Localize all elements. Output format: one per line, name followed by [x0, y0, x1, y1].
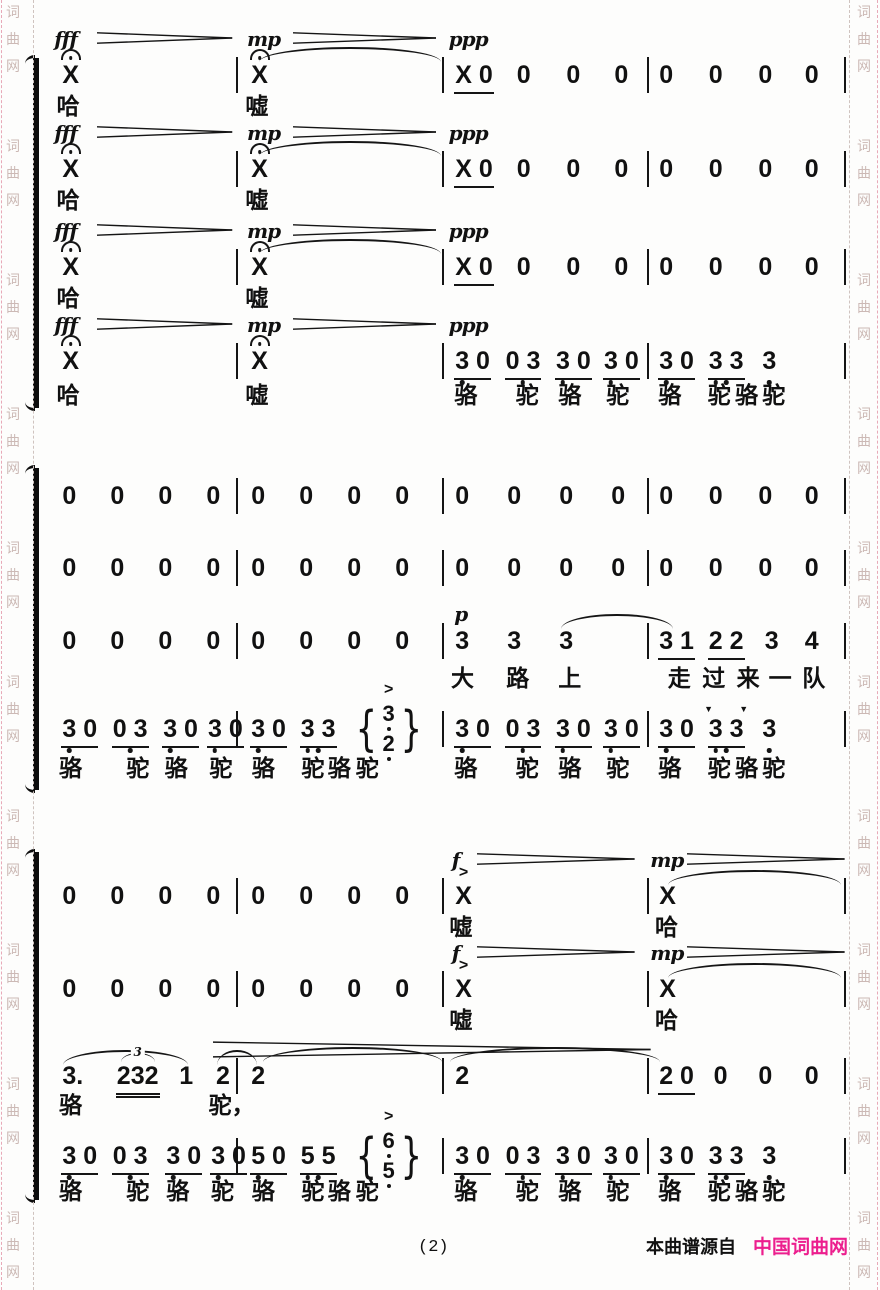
note: 0 — [658, 156, 674, 186]
barline — [844, 1138, 846, 1174]
lyric: 走 — [668, 668, 691, 691]
note: 3 0 — [454, 716, 491, 746]
note: 0 — [250, 555, 266, 585]
edge-line-left — [1, 0, 2, 1290]
chord-brace-left: { — [356, 1132, 377, 1180]
lyric: 骆 — [328, 1181, 351, 1204]
decrescendo-hairpin — [97, 32, 232, 44]
note: 0 — [346, 555, 362, 585]
note: 0 — [250, 976, 266, 1006]
lyric: 哈 — [655, 917, 678, 940]
watermark-right: 网 — [857, 194, 871, 208]
fermata-icon — [61, 143, 81, 154]
lyric: 驼 — [516, 385, 539, 408]
note: 2 — [454, 1063, 470, 1093]
decrescendo-hairpin — [477, 946, 635, 958]
inner-dashed-line-left — [33, 0, 34, 1290]
lyric: 嘘 — [245, 96, 268, 119]
chord-tone: 2 — [383, 733, 395, 755]
barline — [844, 57, 846, 93]
watermark-right: 网 — [857, 328, 871, 342]
lyric: 上 — [558, 668, 581, 691]
note: 0 — [658, 483, 674, 513]
lyric: 骆 — [166, 1181, 189, 1204]
note: 3 — [454, 628, 470, 658]
decrescendo-hairpin — [687, 946, 845, 958]
note: 4 — [804, 628, 820, 658]
note: 0 — [516, 156, 532, 186]
page-number: (2) — [418, 1238, 449, 1258]
note: 3 0 — [165, 1143, 202, 1173]
tie-slur-arc — [259, 239, 441, 254]
decrescendo-hairpin — [97, 126, 232, 138]
lyric: 驼 — [762, 385, 785, 408]
dynamic-fff: fff — [54, 123, 77, 143]
note: 3 0 — [555, 1143, 592, 1173]
barline — [236, 550, 238, 586]
dynamic-mp: mp — [247, 29, 280, 49]
watermark-right: 曲 — [857, 569, 871, 583]
note: 0 — [613, 62, 629, 92]
note: 0 — [804, 555, 820, 585]
barline — [844, 151, 846, 187]
lyric: 骆 — [658, 385, 681, 408]
note: X 0 — [454, 62, 494, 92]
barline — [442, 343, 444, 379]
barline — [647, 971, 649, 1007]
lyric: 嘘 — [245, 288, 268, 311]
watermark-left: 网 — [6, 1132, 20, 1146]
decrescendo-hairpin — [477, 853, 635, 865]
marcato-icon: ▼▼ — [704, 705, 748, 714]
decrescendo-hairpin — [293, 318, 436, 330]
note: 0 — [298, 555, 314, 585]
watermark-right: 曲 — [857, 167, 871, 181]
inner-dashed-line-right — [849, 0, 850, 1290]
barline — [647, 478, 649, 514]
note: 3 0 — [555, 348, 592, 378]
note: X — [250, 62, 269, 92]
note: 0 — [610, 555, 626, 585]
note: 0 — [613, 156, 629, 186]
watermark-right: 词 — [857, 1078, 871, 1092]
note: 0 — [708, 156, 724, 186]
lyric: 嘘 — [449, 917, 472, 940]
note: 0 — [708, 555, 724, 585]
lyric: 骆 — [59, 1095, 82, 1118]
watermark-left: 网 — [6, 1266, 20, 1280]
note: X> — [454, 883, 473, 913]
watermark-right: 网 — [857, 1266, 871, 1280]
watermark-right: 曲 — [857, 301, 871, 315]
note: 3 0 — [603, 716, 640, 746]
note: 0 — [658, 62, 674, 92]
footer-source-text: 本曲谱源自 — [646, 1237, 736, 1259]
note: 0 — [757, 254, 773, 284]
note: 3 — [558, 628, 574, 658]
lyric: 嘘 — [449, 1010, 472, 1033]
note: 0 — [157, 976, 173, 1006]
fermata-icon — [61, 241, 81, 252]
watermark-right: 词 — [857, 542, 871, 556]
chord-tone: 5 — [383, 1160, 395, 1182]
decrescendo-hairpin — [293, 32, 436, 44]
watermark-left: 词 — [6, 6, 20, 20]
note: 2 2 — [708, 628, 745, 658]
watermark-right: 曲 — [857, 1239, 871, 1253]
dynamic-ppp: ppp — [449, 315, 488, 335]
note: 0 — [394, 976, 410, 1006]
note: 2323 — [116, 1063, 160, 1093]
watermark-right: 词 — [857, 408, 871, 422]
note: 0 — [205, 628, 221, 658]
lyric: 骆 — [735, 758, 758, 781]
note: 3 3 — [300, 716, 337, 746]
watermark-left: 网 — [6, 864, 20, 878]
tie-slur-arc — [668, 963, 841, 978]
triplet-3-mark: 3 — [121, 1050, 155, 1061]
barline — [647, 550, 649, 586]
note: 3 0 — [658, 348, 695, 378]
note: 0 — [394, 628, 410, 658]
watermark-left: 网 — [6, 596, 20, 610]
note: 0 3 — [505, 1143, 542, 1173]
barline — [844, 971, 846, 1007]
lyric: 驼 — [356, 1181, 379, 1204]
barline — [442, 1058, 444, 1094]
barline — [236, 151, 238, 187]
note: 0 — [394, 883, 410, 913]
barline — [647, 1138, 649, 1174]
lyric: 驼 — [126, 1181, 149, 1204]
watermark-left: 曲 — [6, 435, 20, 449]
note: 3 3 — [708, 348, 745, 378]
note: 3 0 — [250, 716, 287, 746]
lyric: 骆 — [328, 758, 351, 781]
lyric: 驼 — [708, 385, 731, 408]
lyric: 一 — [769, 668, 792, 691]
note: 0 — [109, 976, 125, 1006]
watermark-right: 网 — [857, 462, 871, 476]
note: 3 — [761, 348, 777, 378]
note: 5 0 — [250, 1143, 287, 1173]
watermark-right: 曲 — [857, 971, 871, 985]
note: 0 — [109, 883, 125, 913]
note: 3. — [61, 1063, 84, 1093]
lyric: 驼 — [606, 758, 629, 781]
watermark-right: 曲 — [857, 703, 871, 717]
chord-note: {32}> — [351, 700, 426, 758]
note: 0 — [804, 1063, 820, 1093]
lyric: 骆 — [252, 758, 275, 781]
watermark-left: 词 — [6, 274, 20, 288]
watermark-left: 网 — [6, 462, 20, 476]
note: 0 — [346, 483, 362, 513]
watermark-left: 词 — [6, 676, 20, 690]
barline — [236, 971, 238, 1007]
note: 1 — [178, 1063, 194, 1093]
fermata-icon — [61, 335, 81, 346]
note: 0 — [346, 883, 362, 913]
note: 0 — [157, 555, 173, 585]
watermark-left: 网 — [6, 328, 20, 342]
accent-icon: > — [459, 865, 468, 881]
barline — [647, 249, 649, 285]
note: 0 — [205, 555, 221, 585]
note: 0 — [516, 62, 532, 92]
chord-tone: 3 — [383, 703, 395, 725]
dynamic-mp: mp — [247, 315, 280, 335]
lyric: 驼 — [516, 1181, 539, 1204]
score-canvas: fffmppppXXX 00000000哈嘘fffmppppXXX 000000… — [47, 0, 847, 1290]
lyric: 骆 — [454, 758, 477, 781]
watermark-right: 网 — [857, 596, 871, 610]
note: 3 0 — [454, 348, 491, 378]
barline — [844, 478, 846, 514]
note: 3 0 — [61, 1143, 98, 1173]
watermark-right: 网 — [857, 730, 871, 744]
lyric: 驼 — [708, 1181, 731, 1204]
note: X> — [454, 976, 473, 1006]
accent-icon: > — [384, 682, 393, 698]
note: 0 — [61, 883, 77, 913]
watermark-right: 词 — [857, 274, 871, 288]
note: 0 3 — [505, 716, 542, 746]
note: 0 — [565, 156, 581, 186]
note: 0 — [804, 156, 820, 186]
note: 0 — [250, 628, 266, 658]
watermark-left: 词 — [6, 944, 20, 958]
dynamic-ppp: ppp — [449, 221, 488, 241]
tie-slur-arc — [259, 47, 441, 62]
note: 0 — [713, 1063, 729, 1093]
note: X — [658, 883, 677, 913]
lyric: 哈 — [655, 1010, 678, 1033]
note: 0 — [558, 483, 574, 513]
score-page: { "footer": { "page_number": "(2)", "sou… — [0, 0, 880, 1290]
note: 0 — [205, 976, 221, 1006]
dynamic-mp: mp — [650, 943, 683, 963]
lyric: 过 — [702, 668, 725, 691]
watermark-left: 曲 — [6, 837, 20, 851]
note: 0 — [757, 62, 773, 92]
note: 2 — [250, 1063, 266, 1093]
note: 0 — [804, 483, 820, 513]
chord-tone: 6 — [383, 1130, 395, 1152]
lyric: 驼 — [606, 385, 629, 408]
note: 3 0 — [658, 1143, 695, 1173]
watermark-right: 词 — [857, 6, 871, 20]
note: 0 — [61, 555, 77, 585]
watermark-left: 网 — [6, 730, 20, 744]
lyric: 驼 — [301, 1181, 324, 1204]
note: 0 — [109, 555, 125, 585]
barline — [236, 878, 238, 914]
note: 0 — [516, 254, 532, 284]
tie-slur-arc — [561, 614, 672, 629]
barline — [647, 1058, 649, 1094]
lyric: 骆 — [454, 1181, 477, 1204]
note: 3 0 — [207, 716, 244, 746]
barline — [236, 57, 238, 93]
lyric: 驼 — [708, 758, 731, 781]
note: 3 0 — [603, 348, 640, 378]
watermark-left: 网 — [6, 998, 20, 1012]
lyric: 嘘 — [245, 385, 268, 408]
note: 0 — [613, 254, 629, 284]
note: 2 0 — [658, 1063, 695, 1093]
note: 0 — [346, 976, 362, 1006]
watermark-right: 网 — [857, 60, 871, 74]
note: 0 3 — [112, 1143, 149, 1173]
watermark-left: 曲 — [6, 971, 20, 985]
lyric: 骆 — [735, 385, 758, 408]
note: 0 — [708, 62, 724, 92]
note: 3 — [761, 716, 777, 746]
barline — [442, 151, 444, 187]
lyric: 队 — [802, 668, 825, 691]
note: 3 0 — [603, 1143, 640, 1173]
note: X — [250, 348, 269, 378]
lyric: 驼 — [301, 758, 324, 781]
note: 0 — [205, 883, 221, 913]
note: 0 — [610, 483, 626, 513]
note: X — [250, 254, 269, 284]
watermark-right: 网 — [857, 998, 871, 1012]
note: 3 0 — [210, 1143, 247, 1173]
watermark-right: 网 — [857, 1132, 871, 1146]
tie-slur-arc — [668, 870, 841, 885]
barline — [647, 151, 649, 187]
accent-icon: > — [459, 958, 468, 974]
barline — [844, 343, 846, 379]
watermark-left: 曲 — [6, 301, 20, 315]
chord-note: {65}> — [351, 1127, 426, 1185]
note: 0 — [157, 883, 173, 913]
lyric: 骆 — [454, 385, 477, 408]
watermark-right: 词 — [857, 676, 871, 690]
barline — [442, 249, 444, 285]
lyric: 驼， — [209, 1095, 255, 1118]
note: 0 — [506, 483, 522, 513]
dynamic-ppp: ppp — [449, 123, 488, 143]
lyric: 骆 — [658, 758, 681, 781]
note: 0 — [109, 483, 125, 513]
barline — [844, 878, 846, 914]
watermark-right: 词 — [857, 1212, 871, 1226]
note: 3 0 — [162, 716, 199, 746]
note: 0 — [61, 628, 77, 658]
barline — [442, 623, 444, 659]
note: 0 — [804, 62, 820, 92]
watermark-right: 词 — [857, 810, 871, 824]
note: X — [61, 62, 80, 92]
note: 0 — [565, 62, 581, 92]
dynamic-fff: fff — [54, 221, 77, 241]
dynamic-mp: mp — [247, 221, 280, 241]
footer-brand-link[interactable]: 中国词曲网 — [753, 1236, 848, 1259]
watermark-right: 词 — [857, 944, 871, 958]
note: 0 — [658, 254, 674, 284]
watermark-left: 曲 — [6, 1239, 20, 1253]
note: X 0 — [454, 156, 494, 186]
barline — [442, 1138, 444, 1174]
watermark-right: 网 — [857, 864, 871, 878]
note: 0 — [250, 483, 266, 513]
note: 3 0 — [658, 716, 695, 746]
barline — [236, 249, 238, 285]
note: 0 — [757, 483, 773, 513]
note: 0 — [205, 483, 221, 513]
note: 3 0 — [61, 716, 98, 746]
lyric: 骆 — [658, 1181, 681, 1204]
barline — [442, 478, 444, 514]
decrescendo-hairpin — [97, 224, 232, 236]
lyric: 哈 — [57, 96, 80, 119]
note: 0 — [558, 555, 574, 585]
lyric: 驼 — [356, 758, 379, 781]
lyric: 哈 — [57, 288, 80, 311]
barline — [442, 711, 444, 747]
note: 0 — [658, 555, 674, 585]
barline — [844, 711, 846, 747]
watermark-left: 网 — [6, 60, 20, 74]
watermark-left: 词 — [6, 542, 20, 556]
dynamic-fff: fff — [54, 29, 77, 49]
note: 0 — [157, 483, 173, 513]
note: 0 — [157, 628, 173, 658]
watermark-left: 词 — [6, 1212, 20, 1226]
barline — [442, 550, 444, 586]
note: X — [658, 976, 677, 1006]
note: 0 — [394, 483, 410, 513]
fermata-icon — [61, 49, 81, 60]
watermark-right: 词 — [857, 140, 871, 154]
note: 3 — [761, 1143, 777, 1173]
note: 0 — [109, 628, 125, 658]
barline — [442, 878, 444, 914]
watermark-left: 词 — [6, 408, 20, 422]
barline — [647, 878, 649, 914]
lyric: 骆 — [558, 385, 581, 408]
note: 0 — [708, 483, 724, 513]
tie-slur-arc — [259, 141, 441, 156]
watermark-left: 词 — [6, 140, 20, 154]
note: 3 0 — [555, 716, 592, 746]
barline — [844, 1058, 846, 1094]
lyric: 来 — [737, 668, 760, 691]
barline — [236, 343, 238, 379]
lyric: 驼 — [126, 758, 149, 781]
accent-icon: > — [384, 1109, 393, 1125]
chord-brace-left: { — [356, 705, 377, 753]
lyric: 哈 — [57, 385, 80, 408]
watermark-right: 曲 — [857, 1105, 871, 1119]
barline — [647, 57, 649, 93]
note: 0 3 — [505, 348, 542, 378]
lyric: 骆 — [252, 1181, 275, 1204]
note: 0 — [804, 254, 820, 284]
decrescendo-hairpin — [293, 224, 436, 236]
dynamic-p: p — [454, 604, 467, 624]
note: 3 1 — [658, 628, 695, 658]
note: 5 5 — [300, 1143, 337, 1173]
lyric: 骆 — [59, 1181, 82, 1204]
lyric: 大 — [451, 668, 474, 691]
barline — [442, 57, 444, 93]
note: 0 — [454, 483, 470, 513]
barline — [236, 623, 238, 659]
